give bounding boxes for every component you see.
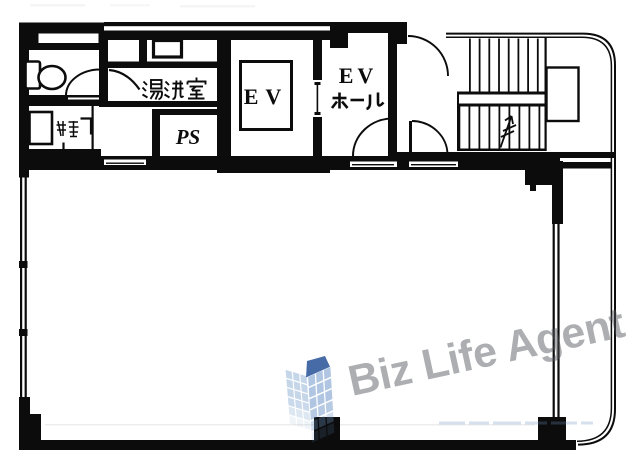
svg-text:EV: EV — [244, 84, 289, 109]
svg-text:PS: PS — [175, 125, 201, 149]
svg-text:EV: EV — [339, 63, 378, 88]
